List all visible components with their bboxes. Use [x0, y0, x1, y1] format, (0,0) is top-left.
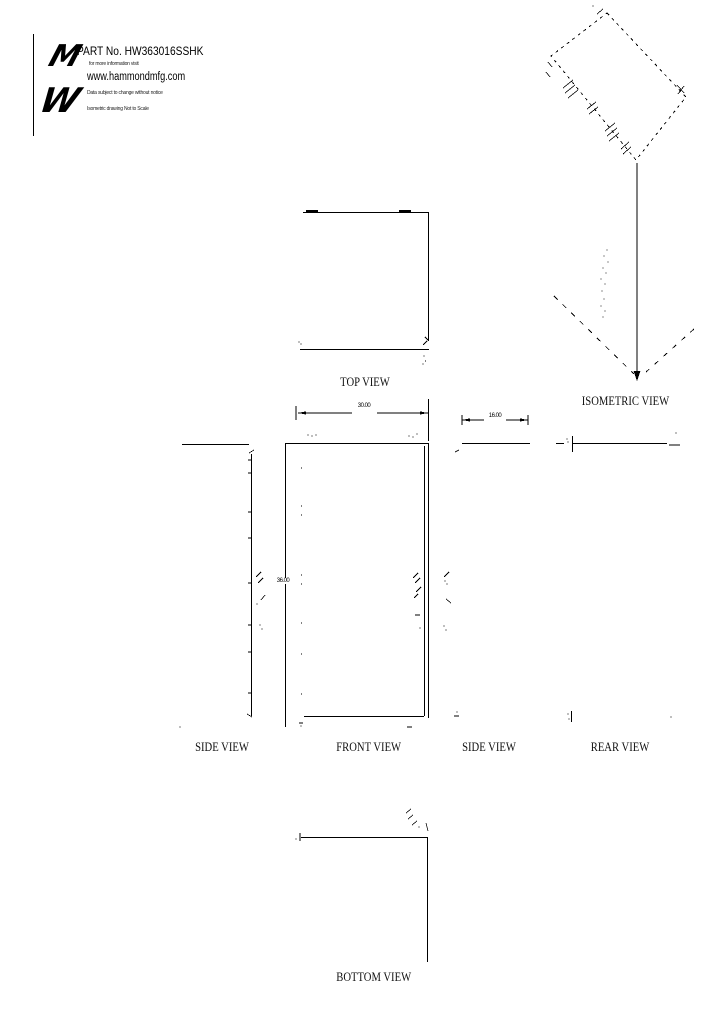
bottom-view-linework	[295, 809, 428, 962]
top-view-linework	[298, 211, 429, 365]
hammond-logo-bottom-icon: W	[41, 84, 79, 118]
disclaimer-note: Data subject to change without notice	[87, 90, 163, 96]
isometric-view-label: ISOMETRIC VIEW	[582, 394, 659, 409]
drawing-linework	[0, 0, 720, 1012]
front-width-dimension: 30.00	[352, 403, 376, 409]
drawing-page: M W PART No. HW363016SSHK for more infor…	[0, 0, 720, 1012]
rear-view-linework	[556, 432, 680, 722]
isometric-view-linework	[546, 5, 694, 381]
logo-glyph-w: W	[35, 84, 84, 118]
bottom-view-label: BOTTOM VIEW	[336, 970, 396, 985]
side-view-right-linework	[443, 415, 530, 716]
website-text: www.hammondmfg.com	[87, 71, 185, 83]
side-depth-dimension: 16.00	[484, 413, 506, 419]
front-height-dimension: 36.00	[273, 578, 293, 584]
side-view-left-label: SIDE VIEW	[192, 740, 252, 755]
side-view-right-label: SIDE VIEW	[459, 740, 519, 755]
scale-note: Isometric drawing Not to Scale	[87, 106, 149, 112]
rear-view-label: REAR VIEW	[590, 740, 650, 755]
part-number-line: PART No. HW363016SSHK	[77, 44, 203, 58]
info-note: for more information visit	[89, 61, 139, 67]
top-view-label: TOP VIEW	[335, 375, 395, 390]
side-view-left-linework	[179, 445, 265, 728]
hammond-logo-top-icon: M	[50, 40, 80, 74]
front-view-label: FRONT VIEW	[336, 740, 396, 755]
front-view-linework	[286, 399, 429, 727]
